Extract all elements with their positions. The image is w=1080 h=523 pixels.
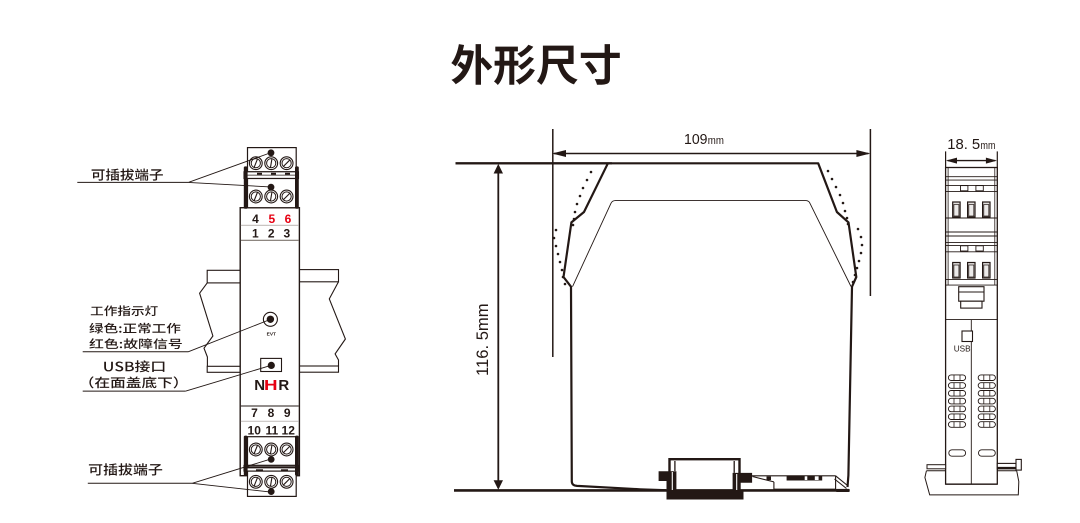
svg-text:109: 109 bbox=[684, 132, 708, 148]
svg-text:116. 5mm: 116. 5mm bbox=[474, 303, 492, 376]
svg-text:USB: USB bbox=[954, 345, 971, 354]
svg-text:4: 4 bbox=[252, 212, 259, 226]
svg-text:5: 5 bbox=[269, 212, 276, 226]
svg-text:mm: mm bbox=[708, 135, 724, 147]
svg-text:H: H bbox=[264, 377, 278, 394]
svg-text:R: R bbox=[278, 377, 289, 394]
svg-text:2: 2 bbox=[268, 227, 275, 241]
svg-text:12: 12 bbox=[282, 423, 296, 437]
svg-text:10: 10 bbox=[248, 423, 262, 437]
svg-text:11: 11 bbox=[266, 423, 279, 437]
svg-text:mm: mm bbox=[981, 140, 996, 152]
svg-text:9: 9 bbox=[284, 406, 291, 420]
svg-text:7: 7 bbox=[251, 406, 258, 420]
svg-text:1: 1 bbox=[252, 227, 259, 241]
svg-text:6: 6 bbox=[285, 212, 292, 226]
svg-text:3: 3 bbox=[284, 227, 291, 241]
svg-text:8: 8 bbox=[268, 406, 275, 420]
svg-text:EVT: EVT bbox=[267, 332, 276, 338]
svg-text:18. 5: 18. 5 bbox=[947, 136, 980, 153]
